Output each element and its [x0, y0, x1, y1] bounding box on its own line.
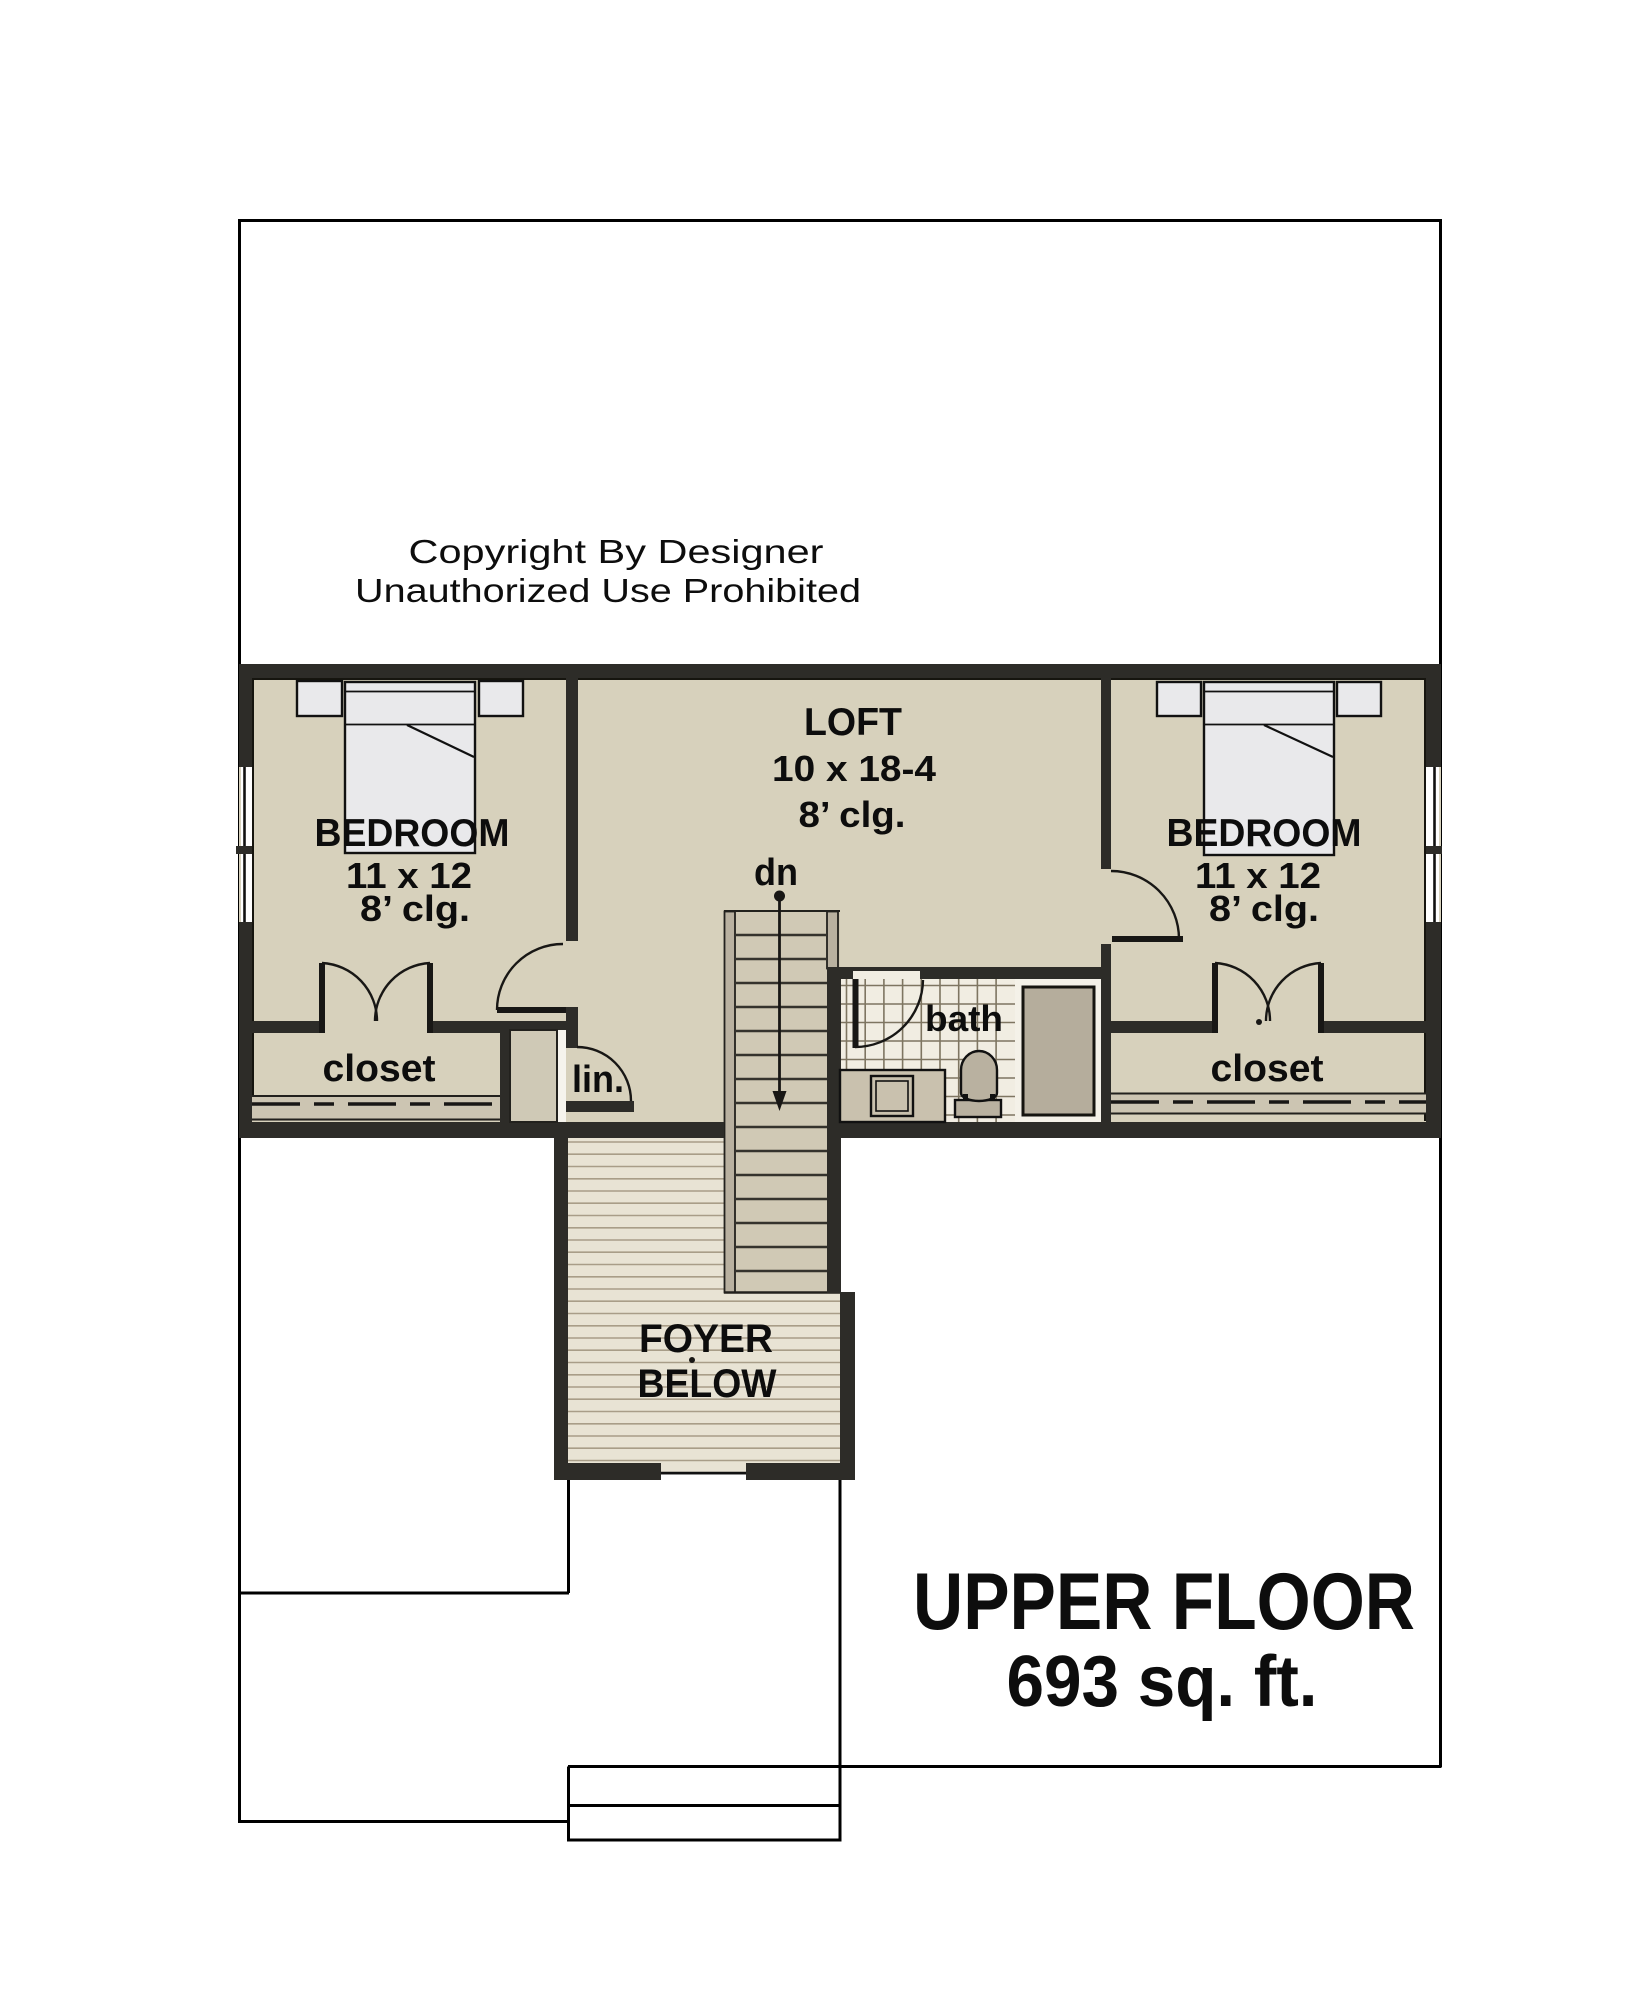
svg-text:8’ clg.: 8’ clg. — [360, 888, 470, 929]
svg-text:BEDROOM: BEDROOM — [315, 812, 510, 855]
svg-text:lin.: lin. — [572, 1059, 624, 1101]
svg-text:Copyright By Designer: Copyright By Designer — [409, 533, 824, 570]
svg-text:LOFT: LOFT — [804, 701, 902, 744]
svg-text:UPPER FLOOR: UPPER FLOOR — [913, 1557, 1415, 1647]
svg-text:closet: closet — [323, 1048, 436, 1090]
svg-text:10 x 18-4: 10 x 18-4 — [772, 748, 936, 789]
svg-text:FOYER: FOYER — [639, 1317, 773, 1361]
svg-text:closet: closet — [1211, 1048, 1324, 1090]
svg-text:BEDROOM: BEDROOM — [1167, 812, 1362, 855]
svg-text:8’ clg.: 8’ clg. — [1209, 888, 1319, 929]
svg-text:BELOW: BELOW — [638, 1362, 777, 1406]
svg-text:8’ clg.: 8’ clg. — [799, 794, 906, 835]
svg-text:bath: bath — [925, 998, 1003, 1039]
svg-text:dn: dn — [754, 852, 798, 894]
svg-text:Unauthorized Use Prohibited: Unauthorized Use Prohibited — [355, 572, 861, 609]
svg-text:693 sq. ft.: 693 sq. ft. — [1007, 1642, 1318, 1722]
